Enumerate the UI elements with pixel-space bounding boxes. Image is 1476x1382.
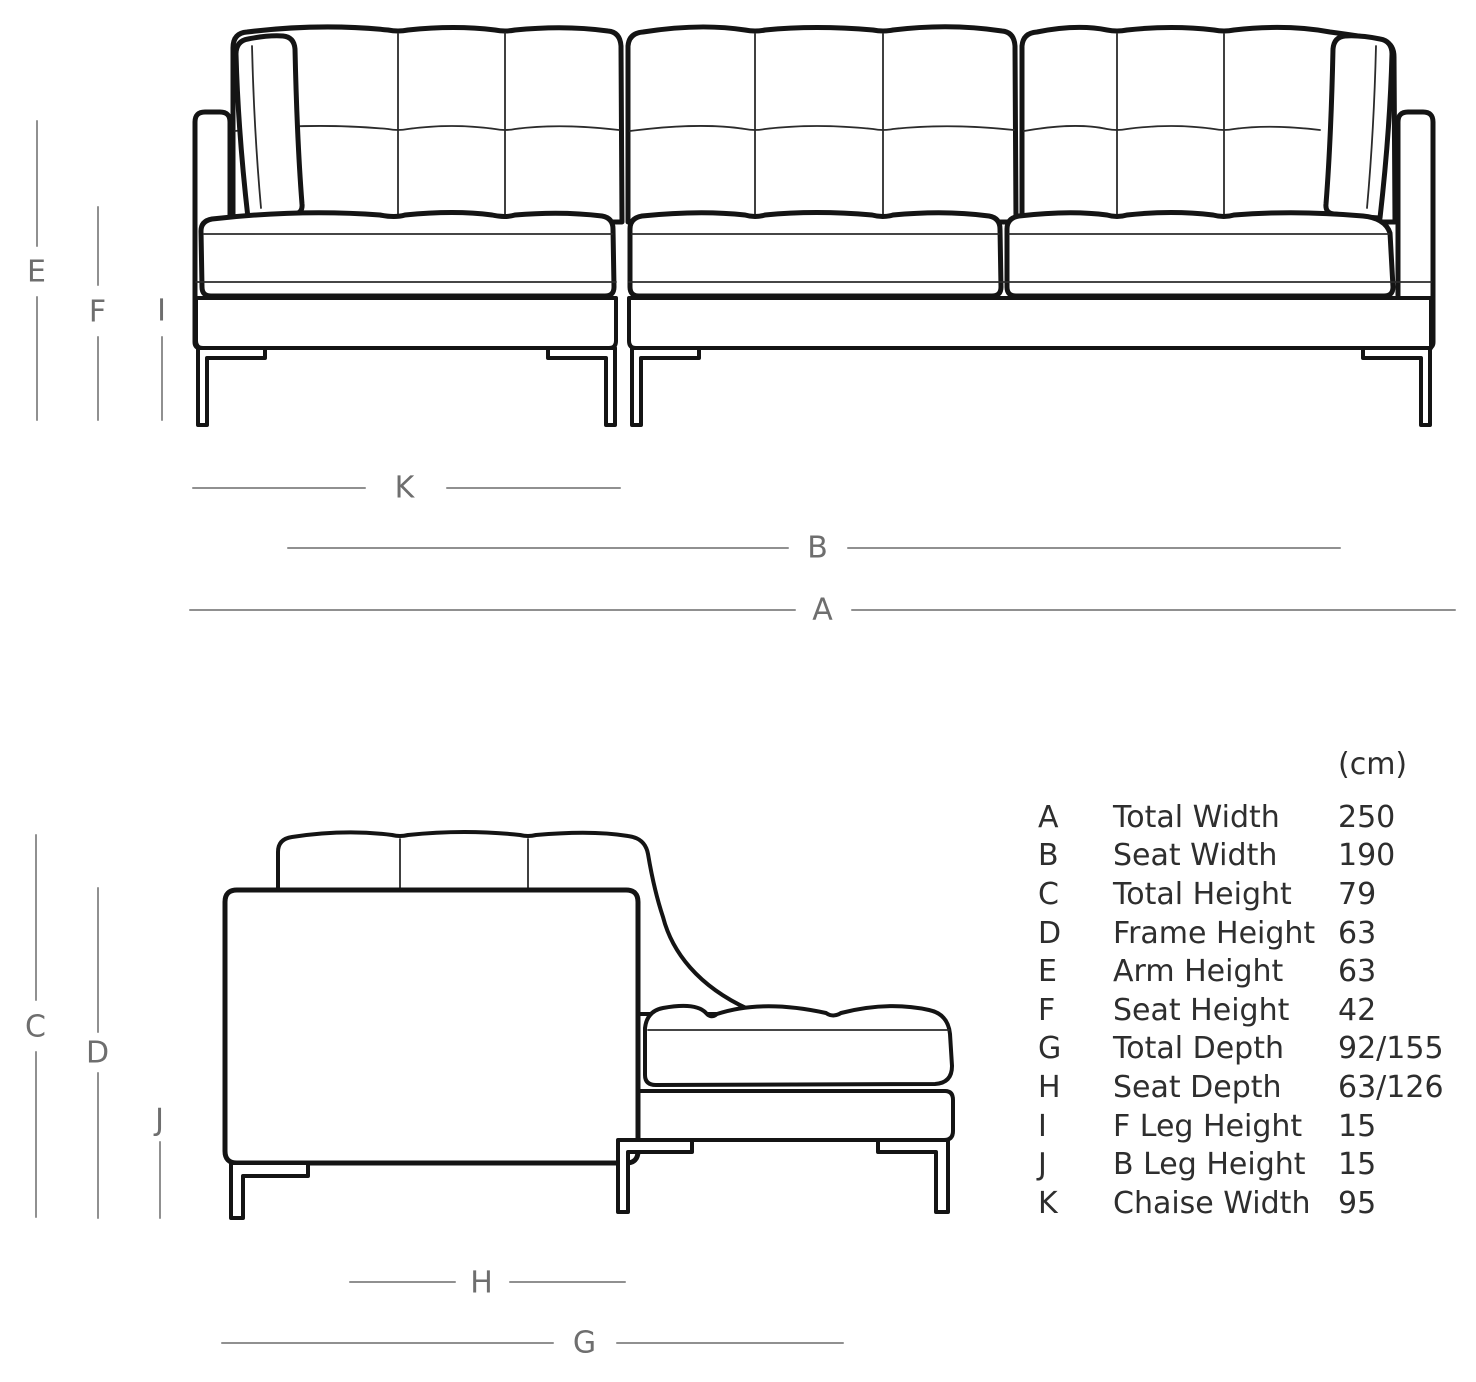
chaise-cushion (645, 1006, 952, 1085)
dim-label-d: D (86, 1036, 110, 1071)
legend-letter: D (1038, 916, 1113, 951)
legend-row: F Seat Height 42 (1038, 991, 1444, 1030)
legend-row: B Seat Width 190 (1038, 837, 1444, 876)
legend-value: 42 (1338, 993, 1376, 1028)
dim-label-e: E (27, 255, 47, 290)
legend-row: A Total Width 250 (1038, 798, 1444, 837)
legend-letter: I (1038, 1109, 1113, 1144)
back-module-middle (628, 27, 1016, 222)
legend-name: Total Width (1113, 800, 1338, 835)
legend-name: Total Height (1113, 877, 1338, 912)
side-view-leg (878, 1140, 948, 1212)
dim-label-b: B (807, 531, 829, 566)
dim-label-g: G (573, 1326, 597, 1361)
legend-row: I F Leg Height 15 (1038, 1107, 1444, 1146)
legend-name: Seat Depth (1113, 1070, 1338, 1105)
base-rail-right (629, 298, 1431, 348)
legend-name: Seat Width (1113, 838, 1338, 873)
legend-name: B Leg Height (1113, 1147, 1338, 1182)
front-view-leg (632, 348, 699, 425)
legend-letter: C (1038, 877, 1113, 912)
legend-name: F Leg Height (1113, 1109, 1338, 1144)
legend-unit-header: (cm) (1338, 747, 1407, 782)
front-view-leg (198, 348, 265, 425)
legend-name: Frame Height (1113, 916, 1338, 951)
dim-label-f: F (89, 295, 107, 330)
legend-row: G Total Depth 92/155 (1038, 1030, 1444, 1069)
side-view-leg (618, 1140, 692, 1212)
wing-cushion-right (1326, 36, 1392, 218)
legend-letter: G (1038, 1031, 1113, 1066)
legend-value: 95 (1338, 1186, 1376, 1221)
legend-row: J B Leg Height 15 (1038, 1145, 1444, 1184)
side-frame-panel (225, 890, 638, 1163)
legend-row: C Total Height 79 (1038, 875, 1444, 914)
legend-letter: K (1038, 1186, 1113, 1221)
legend-value: 250 (1338, 800, 1395, 835)
legend-name: Arm Height (1113, 954, 1338, 989)
legend-letter: J (1038, 1147, 1113, 1182)
legend-row: H Seat Depth 63/126 (1038, 1068, 1444, 1107)
chaise-base (634, 1091, 953, 1140)
wing-cushion-left (236, 36, 302, 218)
front-view-leg (548, 348, 615, 425)
dim-label-k: K (395, 471, 416, 506)
legend-value: 15 (1338, 1147, 1376, 1182)
legend-row: K Chaise Width 95 (1038, 1184, 1444, 1223)
legend-letter: B (1038, 838, 1113, 873)
front-view-leg (1363, 348, 1430, 425)
legend-row: D Frame Height 63 (1038, 914, 1444, 953)
legend-row: E Arm Height 63 (1038, 952, 1444, 991)
dim-label-h: H (470, 1266, 494, 1301)
seat-cushion-left (201, 213, 614, 297)
seat-cushion-right (1007, 213, 1393, 297)
dim-label-i: I (157, 294, 167, 329)
legend-name: Seat Height (1113, 993, 1338, 1028)
legend-value: 63/126 (1338, 1070, 1444, 1105)
legend-value: 92/155 (1338, 1031, 1444, 1066)
legend-letter: A (1038, 800, 1113, 835)
legend-name: Total Depth (1113, 1031, 1338, 1066)
legend-letter: F (1038, 993, 1113, 1028)
front-view-drawing (195, 27, 1433, 425)
legend-value: 190 (1338, 838, 1395, 873)
legend-value: 63 (1338, 916, 1376, 951)
side-view-drawing (225, 832, 953, 1218)
legend-value: 79 (1338, 877, 1376, 912)
dim-label-j: J (155, 1103, 165, 1138)
legend-value: 63 (1338, 954, 1376, 989)
dim-label-a: A (812, 593, 834, 628)
seat-cushion-middle (630, 213, 1001, 297)
legend-letter: E (1038, 954, 1113, 989)
legend-letter: H (1038, 1070, 1113, 1105)
side-view-leg (231, 1163, 308, 1218)
legend-name: Chaise Width (1113, 1186, 1338, 1221)
dimension-legend: A Total Width 250 B Seat Width 190 C Tot… (1038, 798, 1444, 1223)
base-rail-left (196, 298, 616, 348)
legend-value: 15 (1338, 1109, 1376, 1144)
dim-label-c: C (25, 1010, 47, 1045)
